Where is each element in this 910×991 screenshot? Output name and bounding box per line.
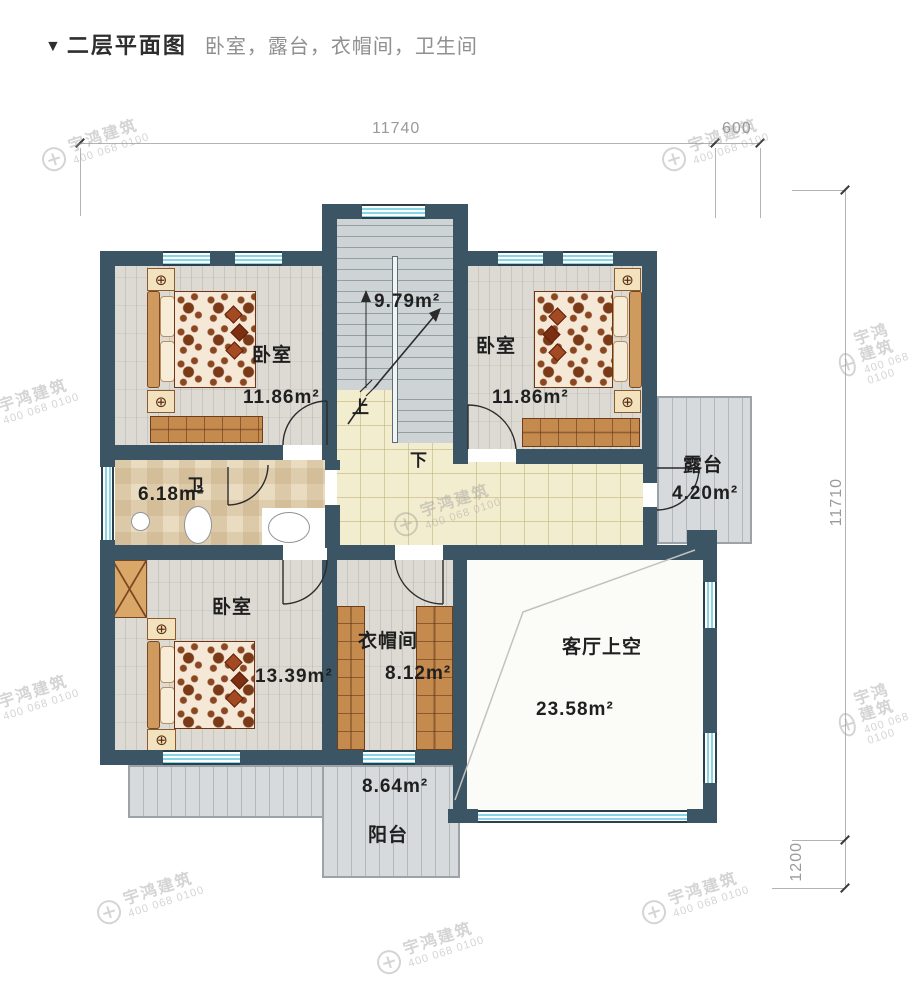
dimension-label-overhang: 600: [722, 120, 752, 138]
wall-segment: [210, 251, 235, 266]
window: [478, 810, 687, 823]
room-name-bedroom-bottom-left: 卧室: [212, 592, 252, 619]
bed-mattress: [534, 291, 613, 388]
balcony-floor-left: [128, 765, 324, 818]
window: [101, 467, 114, 540]
wall-segment: [443, 545, 717, 560]
room-area-living-void: 23.58m²: [536, 699, 614, 721]
watermark-logo-icon: [639, 897, 669, 927]
window: [163, 251, 210, 266]
wall-segment: [543, 251, 563, 266]
wall-segment: [100, 445, 283, 460]
bed-pillow: [160, 687, 175, 724]
watermark-logo-icon: [374, 947, 404, 977]
bed-pillow: [160, 341, 175, 382]
room-area-bedroom-top-right: 11.86m²: [492, 387, 569, 409]
nightstand: [147, 390, 175, 413]
top-dimension-line: [80, 143, 760, 144]
window: [362, 204, 425, 219]
wall-segment: [703, 783, 717, 823]
watermark: 宇鸿建筑400 068 0100: [38, 116, 151, 177]
hallway-floor: [453, 462, 643, 545]
extension-line: [772, 888, 846, 889]
room-area-stairwell: 9.79m²: [374, 291, 440, 313]
right-dimension-line: [845, 190, 846, 888]
wall-segment: [643, 460, 657, 483]
wall-segment: [703, 628, 717, 733]
wall-segment: [453, 765, 467, 823]
stair-up-label: 上: [352, 393, 370, 418]
bed-pillow: [160, 296, 175, 337]
room-area-terrace: 4.20m²: [672, 483, 738, 505]
room-name-terrace: 露台: [683, 450, 723, 477]
window: [163, 750, 240, 765]
wall-segment: [703, 530, 717, 582]
room-area-bedroom-top-left: 11.86m²: [243, 387, 320, 409]
dimension-label-balcony-depth: 1200: [788, 842, 806, 882]
wall-segment: [643, 507, 657, 548]
extension-line: [792, 840, 846, 841]
wall-segment: [282, 251, 322, 266]
room-name-balcony: 阳台: [368, 820, 408, 847]
wall-segment: [100, 251, 115, 467]
extension-line: [715, 148, 716, 218]
wall-segment: [642, 251, 657, 464]
watermark: 宇鸿建筑400 068 0100: [638, 869, 751, 930]
watermark: 宇鸿建筑400 068 0100: [0, 672, 81, 733]
watermark-logo-icon: [836, 351, 859, 379]
wall-segment: [240, 750, 363, 765]
watermark-logo-icon: [94, 897, 124, 927]
wall-segment: [325, 460, 340, 470]
extension-line: [80, 148, 81, 216]
nightstand: [614, 390, 641, 413]
watermark: 宇鸿建筑400 068 0100: [831, 678, 910, 754]
watermark-logo-icon: [836, 711, 859, 739]
closet-duct: [112, 560, 147, 618]
room-area-cloakroom: 8.12m²: [385, 663, 451, 685]
watermark-logo-icon: [39, 144, 69, 174]
room-area-balcony: 8.64m²: [362, 776, 428, 798]
watermark: 宇鸿建筑400 068 0100: [831, 318, 910, 394]
window: [703, 582, 717, 628]
dresser: [150, 416, 263, 443]
nightstand: [147, 618, 176, 640]
living-void-floor: [462, 560, 703, 809]
floor-drain: [131, 512, 150, 531]
window: [363, 750, 415, 765]
wardrobe: [522, 418, 640, 447]
wall-segment: [100, 545, 283, 560]
watermark: 宇鸿建筑400 068 0100: [0, 376, 81, 437]
watermark: 宇鸿建筑400 068 0100: [373, 919, 486, 980]
bed-mattress: [174, 291, 256, 388]
nightstand: [614, 268, 641, 291]
wall-segment: [516, 449, 657, 464]
wall-segment: [100, 540, 115, 765]
floorplan-title: 二层平面图: [67, 33, 187, 58]
bed-headboard: [147, 641, 160, 729]
extension-line: [792, 190, 846, 191]
wall-segment: [325, 505, 340, 548]
window: [235, 251, 282, 266]
wall-segment: [322, 204, 337, 460]
bed-pillow: [613, 296, 628, 337]
window: [563, 251, 613, 266]
wall-segment: [453, 204, 468, 464]
bed-headboard: [629, 291, 642, 388]
watermark: 宇鸿建筑400 068 0100: [93, 869, 206, 930]
room-name-bedroom-top-right: 卧室: [476, 331, 516, 358]
toilet: [184, 506, 212, 544]
stair-handrail: [392, 256, 398, 443]
wall-segment: [322, 560, 337, 765]
stair-treads-lower: [397, 390, 453, 443]
window: [498, 251, 543, 266]
washbasin: [268, 512, 310, 543]
wall-segment: [468, 251, 498, 266]
room-name-bedroom-top-left: 卧室: [252, 340, 292, 367]
page-title: ▼二层平面图卧室，露台，衣帽间，卫生间: [45, 28, 478, 60]
floorplan-subtitle: 卧室，露台，衣帽间，卫生间: [205, 36, 478, 58]
room-area-bathroom: 6.18m²: [138, 484, 204, 506]
wall-segment: [453, 558, 467, 765]
room-area-bedroom-bottom-left: 13.39m²: [255, 666, 333, 688]
nightstand: [147, 268, 175, 291]
room-name-cloakroom: 衣帽间: [358, 626, 418, 653]
watermark-logo-icon: [659, 144, 689, 174]
extension-line: [760, 148, 761, 218]
window: [703, 733, 717, 783]
stair-down-label: 下: [410, 446, 428, 471]
room-name-living-void: 客厅上空: [562, 632, 642, 659]
dimension-label-width: 11740: [372, 120, 420, 138]
bed-headboard: [147, 291, 160, 388]
nightstand: [147, 729, 176, 751]
bed-pillow: [160, 646, 175, 683]
bed-pillow: [613, 341, 628, 382]
dimension-label-height: 11710: [828, 478, 846, 526]
triangle-marker-icon: ▼: [45, 38, 61, 55]
